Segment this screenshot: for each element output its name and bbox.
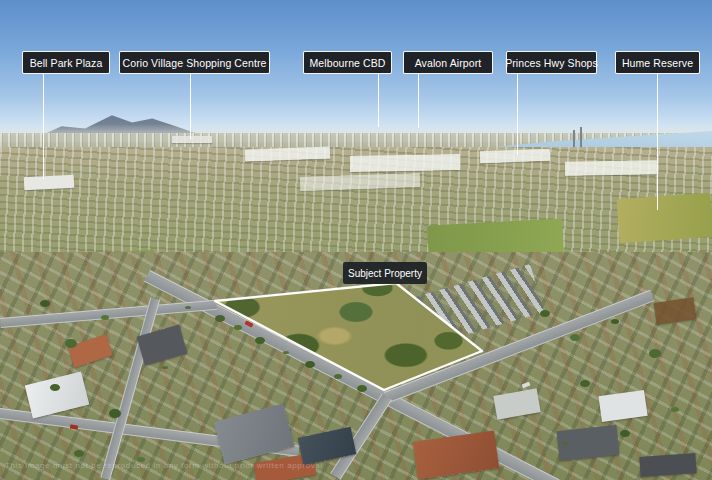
copyright-watermark: This image must not be reproduced in any… [5, 461, 435, 470]
leader-line-bell-park-plaza [43, 74, 44, 179]
subject-property-label: Subject Property [343, 262, 427, 284]
leader-line-hume-reserve [657, 74, 658, 210]
landmark-label-corio-village-shopping-centre: Corio Village Shopping Centre [119, 51, 270, 74]
leader-line-avalon-airport [418, 74, 419, 128]
leader-line-melbourne-cbd [378, 74, 379, 127]
landmark-label-princes-hwy-shops: Princes Hwy Shops [506, 51, 597, 74]
aerial-property-photo: Bell Park Plaza Corio Village Shopping C… [0, 0, 712, 480]
landmark-label-hume-reserve: Hume Reserve [615, 51, 700, 74]
landmark-label-bell-park-plaza: Bell Park Plaza [22, 51, 110, 74]
leader-line-princes-hwy-shops [517, 74, 518, 155]
leader-line-corio-village [190, 74, 191, 139]
landmark-label-melbourne-cbd: Melbourne CBD [303, 51, 392, 74]
landmark-label-avalon-airport: Avalon Airport [403, 51, 493, 74]
